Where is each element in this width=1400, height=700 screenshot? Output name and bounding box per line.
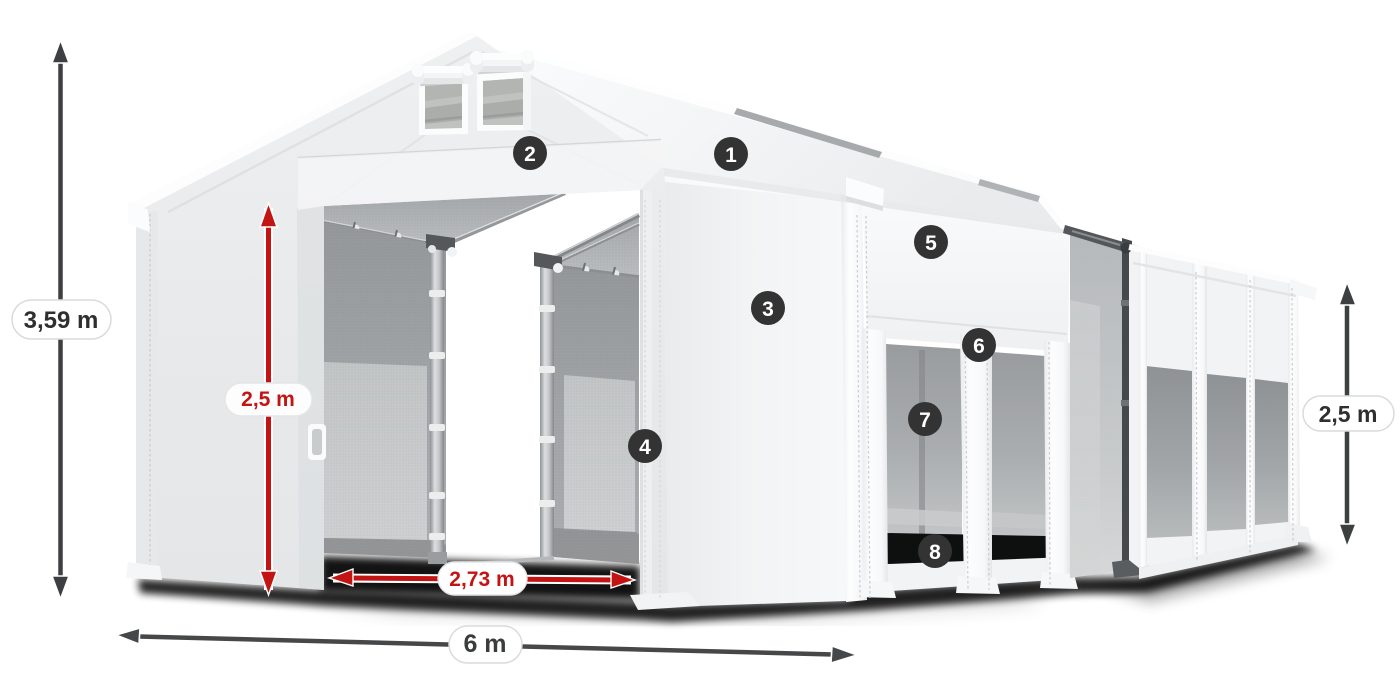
svg-text:3,59 m: 3,59 m bbox=[24, 307, 99, 334]
svg-text:6 m: 6 m bbox=[463, 630, 506, 658]
svg-text:2,5 m: 2,5 m bbox=[1319, 401, 1378, 427]
svg-text:3: 3 bbox=[762, 298, 774, 321]
svg-text:4: 4 bbox=[639, 436, 651, 459]
svg-text:6: 6 bbox=[973, 335, 985, 358]
svg-text:2: 2 bbox=[524, 143, 536, 166]
svg-text:7: 7 bbox=[919, 409, 931, 432]
svg-text:1: 1 bbox=[725, 144, 737, 167]
svg-text:8: 8 bbox=[929, 541, 941, 564]
svg-text:2,5 m: 2,5 m bbox=[241, 388, 295, 411]
svg-text:2,73 m: 2,73 m bbox=[449, 568, 514, 591]
svg-text:5: 5 bbox=[925, 232, 937, 255]
